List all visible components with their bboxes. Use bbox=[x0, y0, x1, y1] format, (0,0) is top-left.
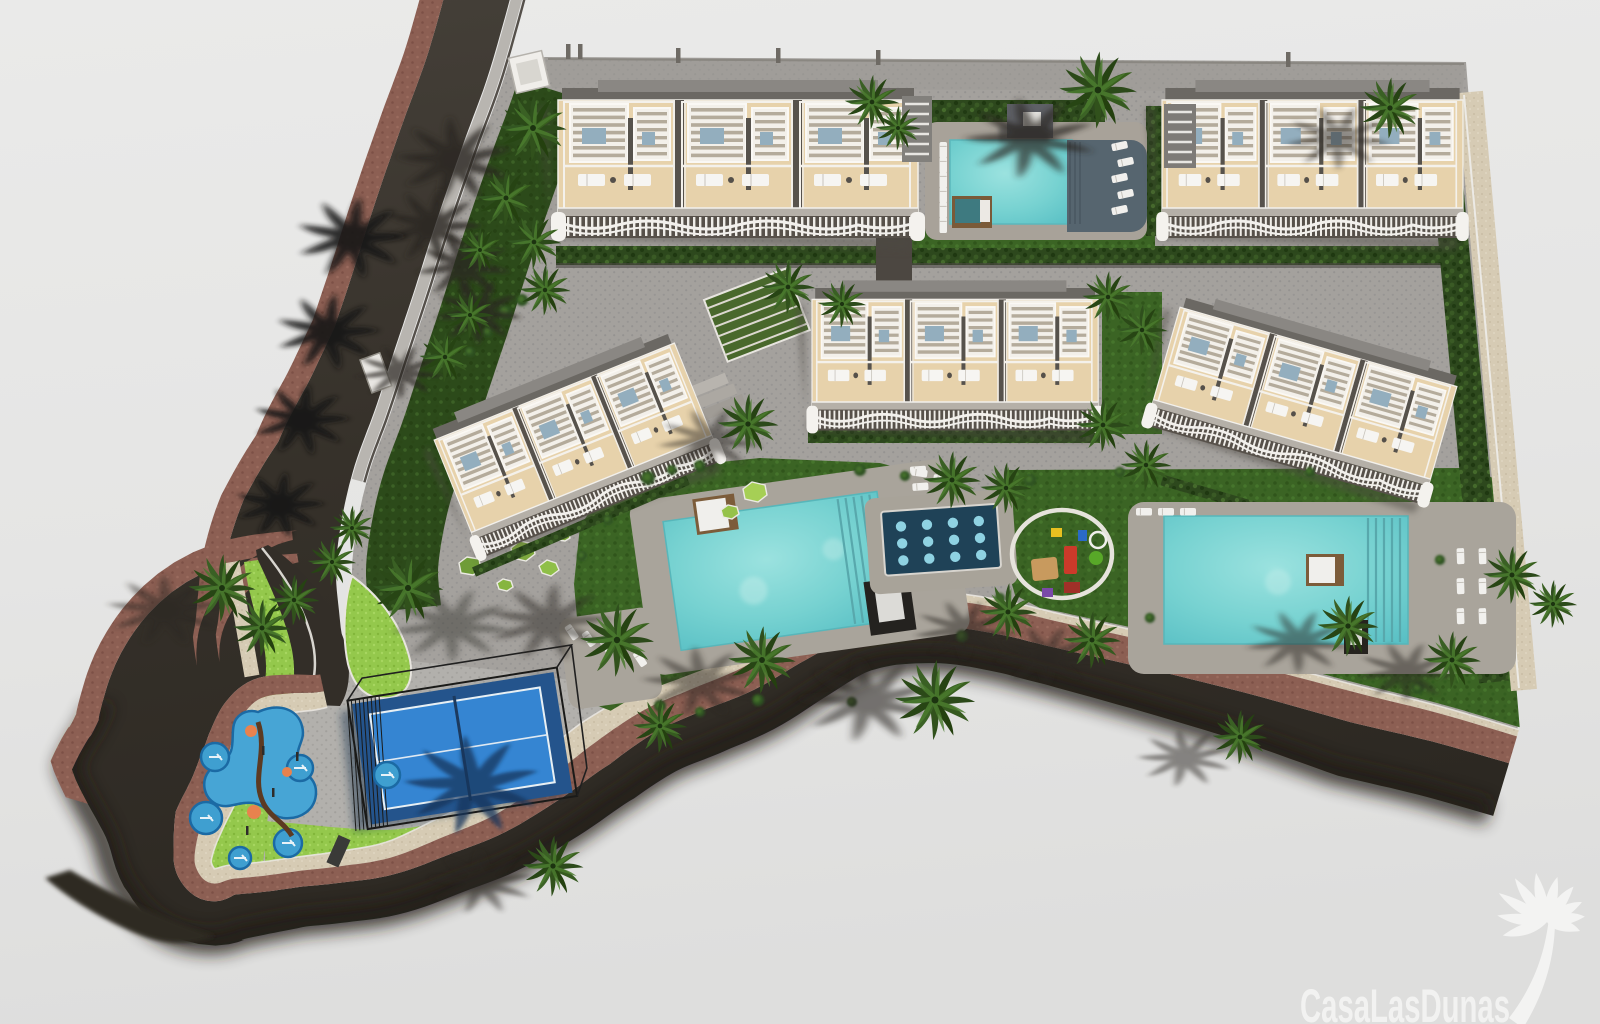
svg-text:CasaLasDunas: CasaLasDunas bbox=[1300, 979, 1510, 1024]
